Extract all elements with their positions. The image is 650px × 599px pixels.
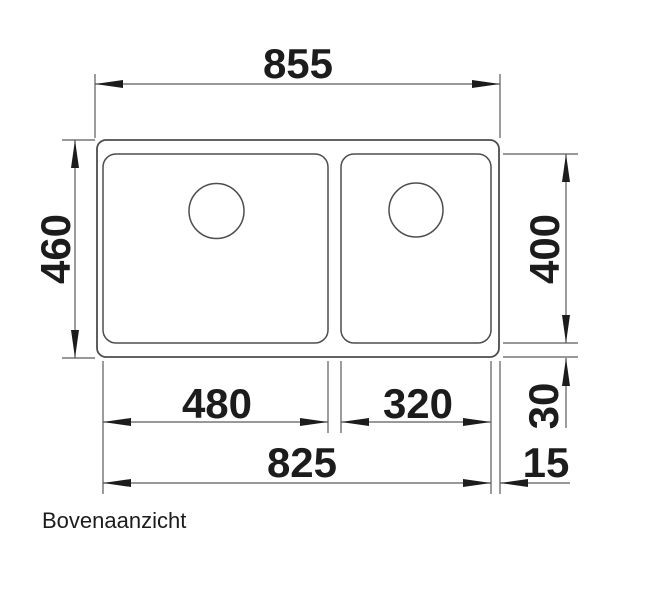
dim-label-480: 480	[182, 380, 252, 427]
arrow-30-up	[562, 358, 570, 386]
dim-label-855: 855	[263, 40, 333, 87]
dim-label-400: 400	[521, 214, 568, 284]
arrow-400-top	[562, 154, 570, 182]
arrow-320-right	[463, 418, 491, 426]
left-drain-circle	[189, 184, 244, 239]
arrow-400-bottom	[562, 315, 570, 343]
technical-drawing-page: 855 460 400 480 320 30 825 15 Bovenaanzi…	[0, 0, 650, 599]
sink-outer-rim	[97, 140, 499, 357]
arrow-460-top	[71, 140, 79, 168]
dim-label-460: 460	[32, 214, 79, 284]
sink-outline-group	[97, 140, 499, 357]
arrow-855-left	[95, 80, 123, 88]
view-caption: Bovenaanzicht	[42, 508, 186, 533]
right-drain-circle	[389, 183, 443, 237]
arrow-460-bottom	[71, 330, 79, 358]
arrow-480-left	[103, 418, 131, 426]
dim-label-825: 825	[267, 439, 337, 486]
arrow-825-right	[463, 479, 491, 487]
dim-label-320: 320	[383, 380, 453, 427]
arrow-480-right	[300, 418, 328, 426]
arrow-855-right	[472, 80, 500, 88]
dimension-lines-group	[62, 74, 578, 494]
dim-label-30: 30	[520, 383, 567, 430]
sink-top-view-drawing: 855 460 400 480 320 30 825 15 Bovenaanzi…	[0, 0, 650, 599]
arrow-320-left	[341, 418, 369, 426]
arrow-825-left	[103, 479, 131, 487]
dim-label-15: 15	[523, 439, 570, 486]
left-bowl	[103, 154, 328, 343]
